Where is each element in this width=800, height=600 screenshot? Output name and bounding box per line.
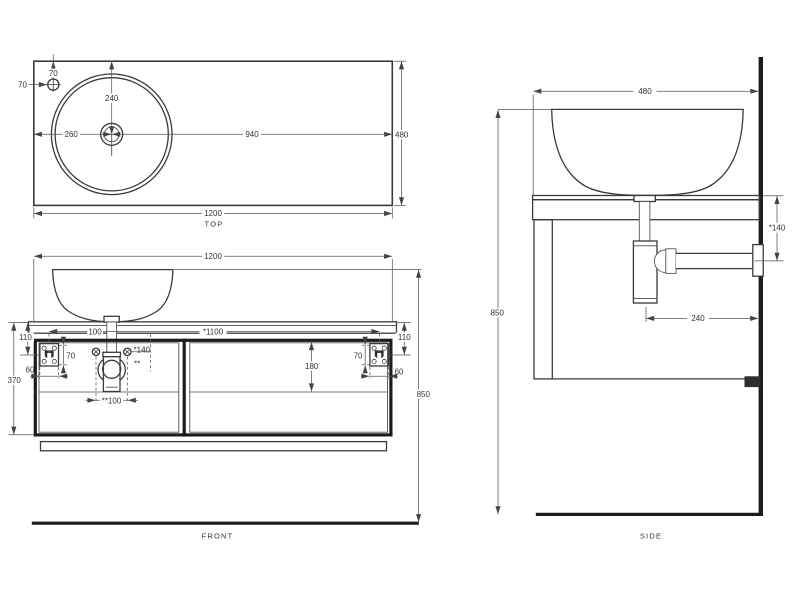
dim-label-basin-to-right: 940 [245,130,259,139]
front-view: 1200 850 100 *1100 110 [6,252,434,541]
top-view-label: TOP [205,220,224,229]
dim-label-drawer-height: 180 [305,362,319,371]
p-trap-side [633,196,763,304]
screw-symbol-left [92,348,99,355]
screw-symbol-right [124,348,131,355]
dim-label-front-width: 1200 [204,252,222,261]
dim-front-height: 850 [174,269,433,522]
side-view: 480 850 *140 240 SIDE [487,57,789,541]
dim-label-top-to-cabinet-bottom: 370 [8,376,22,385]
dim-label-top-depth: 480 [395,131,409,140]
dim-label-basin-from-top: 240 [105,94,119,103]
sink-bowl-front [53,270,173,322]
waste-pipe-fill [676,253,753,268]
dim-label-front-height: 850 [417,390,431,399]
dim-bracket-width-right: 60 [361,367,404,379]
top-view: 70 70 240 260 940 480 [18,55,410,229]
dim-label-bracket-width-left: 60 [26,366,35,375]
dim-label-trap-to-wall: 240 [691,314,705,323]
dim-label-trap-offset: 100 [88,327,102,336]
drain-pipe-front [107,322,117,352]
technical-drawing-vanity: 70 70 240 260 940 480 [0,0,800,600]
trap-sleeve [666,249,676,274]
dim-drawer-height: 180 [303,342,322,391]
dim-label-top-width: 1200 [204,209,222,218]
wall-flange [753,245,763,277]
dim-bracket-height-left: 70 [59,337,76,374]
dim-label-screw-offset: *140 [134,346,151,355]
mounting-bracket-right [370,344,389,366]
dim-side-height: 850 [487,110,552,515]
dim-side-depth: 480 [533,87,758,195]
dim-front-width: 1200 [34,252,393,322]
faucet-hole-icon [46,78,61,92]
dim-label-faucet-from-top: 70 [49,69,58,78]
dim-faucet-from-left: 70 [18,80,47,89]
front-view-label: FRONT [202,532,234,541]
dim-label-counter-to-outlet: *140 [769,224,786,233]
cabinet-side-panel [534,220,552,379]
dim-bracket-height-right: 70 [354,337,370,374]
sink-bowl-side [552,109,744,195]
dim-label-bracket-height-left: 70 [66,351,75,360]
dim-label-side-height: 850 [491,309,505,318]
drain-collar-front [104,316,119,322]
dim-label-top-to-bracket-left: 110 [19,333,32,342]
dim-label-faucet-from-left: 70 [18,80,27,89]
plinth [41,442,387,451]
dim-label-screw-spacing: **100 [102,396,122,405]
dim-faucet-from-top: 70 [46,55,61,80]
dim-label-side-depth: 480 [638,87,652,96]
dim-basin-centerline-horizontal: 260 940 [34,130,392,139]
dim-basin-center-from-top: 240 [103,61,121,134]
cabinet-front [35,339,391,451]
mounting-bracket-left [40,344,59,366]
dim-top-depth: 480 [393,61,410,205]
dim-label-bracket-spacing: *1100 [203,327,224,336]
screw-note-marks: ** [134,360,140,369]
side-view-label: SIDE [640,532,662,541]
cabinet-carcass [35,340,391,435]
drawing-svg: 70 70 240 260 940 480 [0,0,800,600]
dim-label-bracket-width-right: 60 [395,368,404,377]
dim-label-bracket-height-right: 70 [354,351,363,360]
dim-label-top-to-bracket-right: 110 [398,333,411,342]
p-trap-front [98,352,125,391]
dim-top-width: 1200 [34,208,393,219]
dim-trap-to-wall: 240 [646,307,758,323]
dim-label-basin-from-left: 260 [65,130,79,139]
wall-rail [745,376,761,387]
dim-bracket-width-left: 60 [26,366,68,379]
